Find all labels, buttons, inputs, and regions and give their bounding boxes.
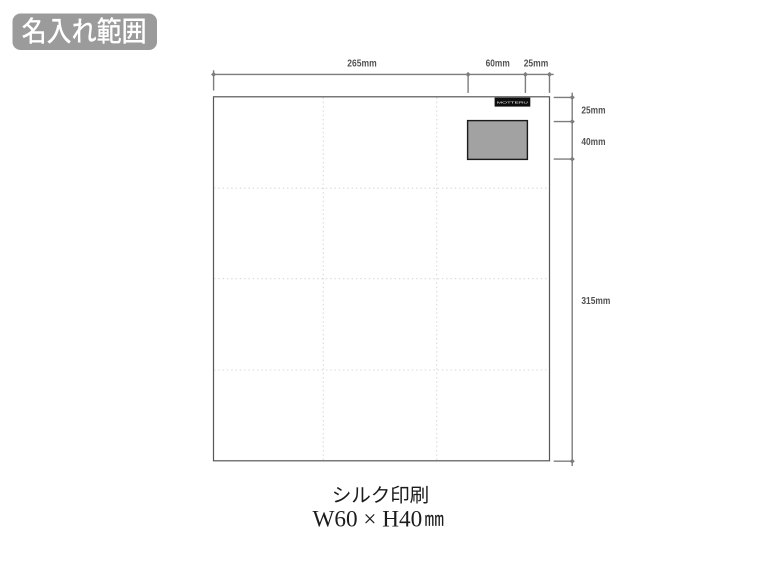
svg-text:315mm: 315mm	[581, 296, 610, 307]
svg-text:60mm: 60mm	[486, 59, 510, 70]
svg-text:25mm: 25mm	[524, 59, 549, 70]
svg-text:MOTTERU: MOTTERU	[497, 100, 528, 104]
svg-text:265mm: 265mm	[347, 59, 377, 70]
svg-text:25mm: 25mm	[581, 105, 605, 116]
svg-text:W60 × H40: W60 × H40	[313, 506, 423, 532]
svg-text:40mm: 40mm	[581, 137, 605, 148]
